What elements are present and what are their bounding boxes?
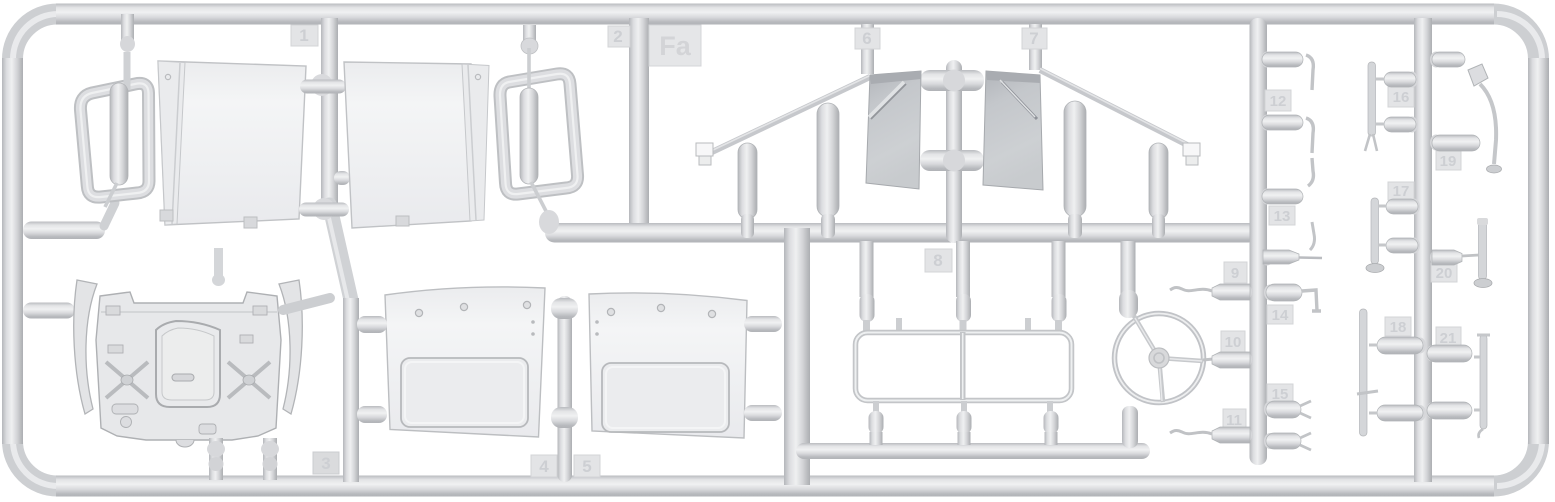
svg-text:12: 12 xyxy=(1270,93,1287,110)
svg-text:18: 18 xyxy=(1390,319,1407,336)
svg-text:9: 9 xyxy=(1231,265,1239,282)
svg-text:5: 5 xyxy=(582,457,591,476)
svg-text:8: 8 xyxy=(933,251,942,270)
svg-text:4: 4 xyxy=(539,457,549,476)
svg-text:11: 11 xyxy=(1226,412,1242,429)
svg-text:17: 17 xyxy=(1393,183,1410,200)
svg-text:10: 10 xyxy=(1225,334,1242,351)
svg-text:7: 7 xyxy=(1029,29,1038,48)
svg-text:14: 14 xyxy=(1272,307,1289,324)
svg-text:21: 21 xyxy=(1440,330,1457,347)
svg-text:1: 1 xyxy=(299,26,308,45)
svg-text:Fa: Fa xyxy=(659,31,691,61)
svg-text:2: 2 xyxy=(613,27,622,46)
svg-text:20: 20 xyxy=(1436,265,1453,282)
svg-text:3: 3 xyxy=(321,454,330,473)
svg-text:15: 15 xyxy=(1272,386,1289,403)
svg-text:16: 16 xyxy=(1393,89,1410,106)
svg-text:13: 13 xyxy=(1274,208,1291,225)
svg-text:6: 6 xyxy=(862,29,871,48)
svg-text:19: 19 xyxy=(1440,153,1457,170)
